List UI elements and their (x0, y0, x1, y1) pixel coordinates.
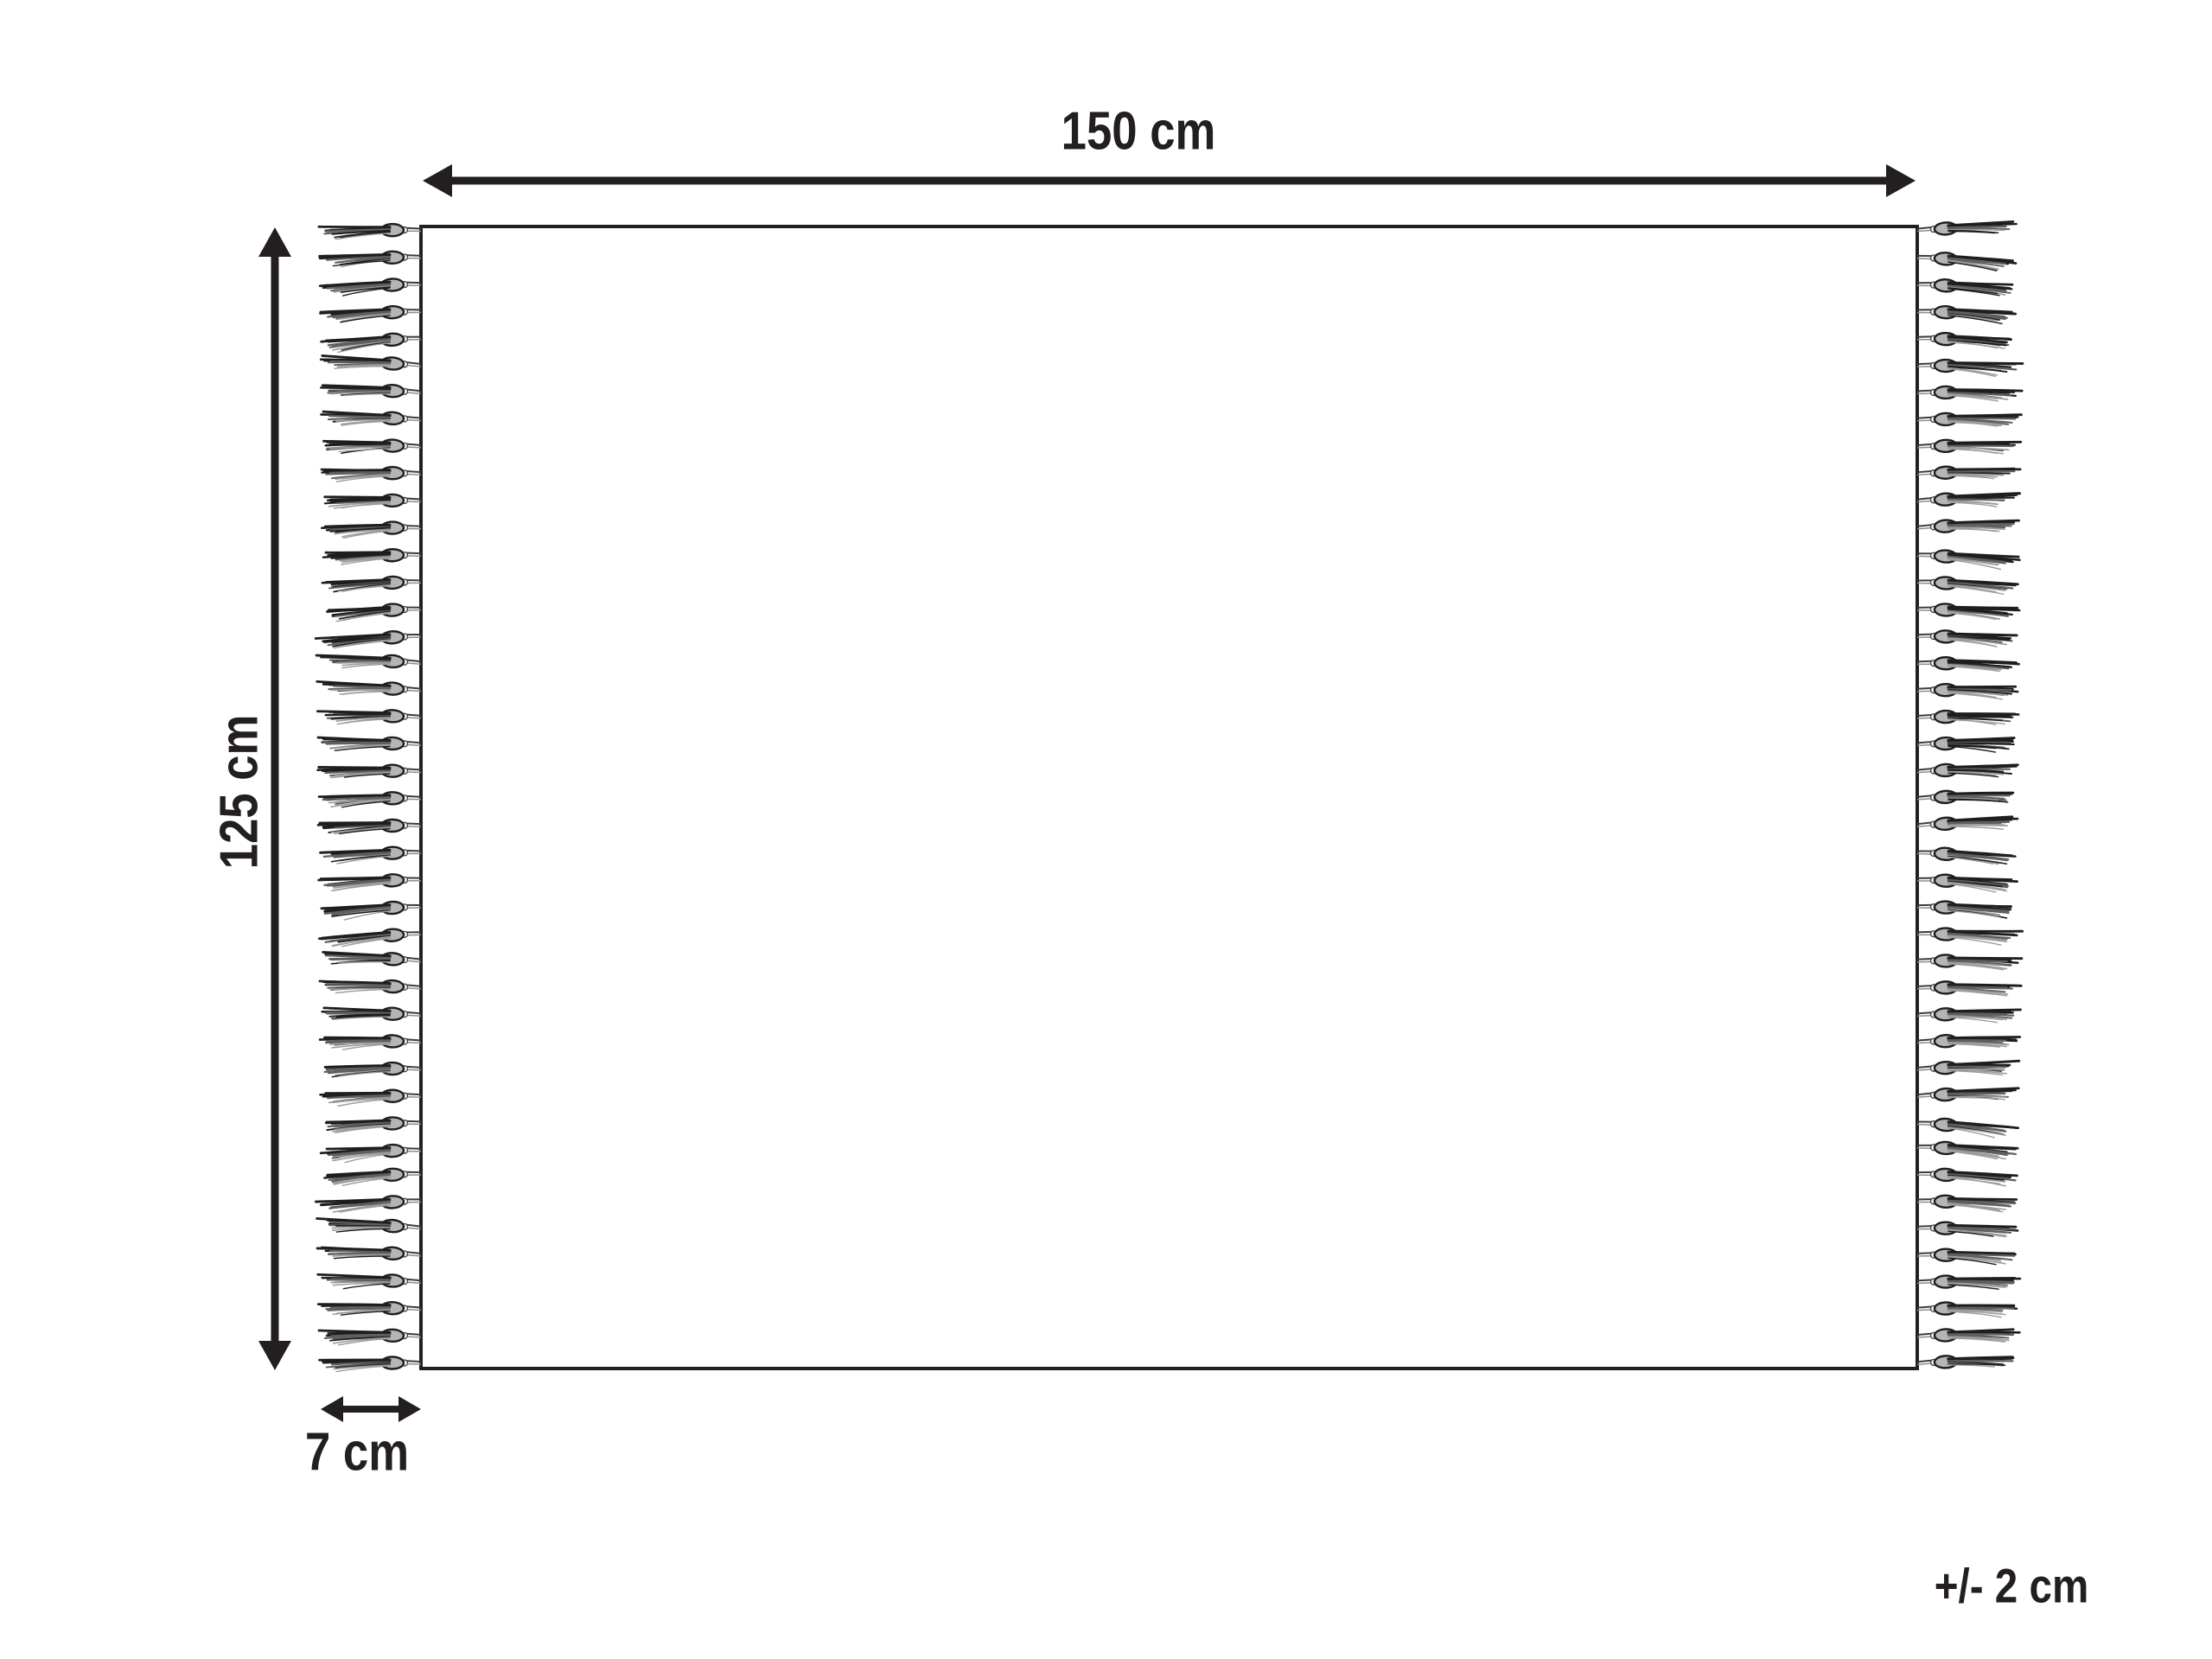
diagram-canvas: 150 cm 125 cm 7 cm +/- 2 cm (0, 0, 2212, 1659)
blanket-outline (421, 227, 1917, 1369)
tolerance-label: +/- 2 cm (1935, 1560, 2089, 1613)
fringe-label: 7 cm (305, 1423, 409, 1483)
fringe-width-arrow (321, 1396, 421, 1422)
height-label: 125 cm (210, 715, 270, 870)
dimension-diagram: 150 cm 125 cm 7 cm +/- 2 cm (0, 0, 2212, 1659)
width-arrow (423, 164, 1916, 197)
right-fringe (1916, 219, 2023, 1370)
width-label: 150 cm (1061, 102, 1216, 162)
left-fringe (316, 224, 422, 1372)
